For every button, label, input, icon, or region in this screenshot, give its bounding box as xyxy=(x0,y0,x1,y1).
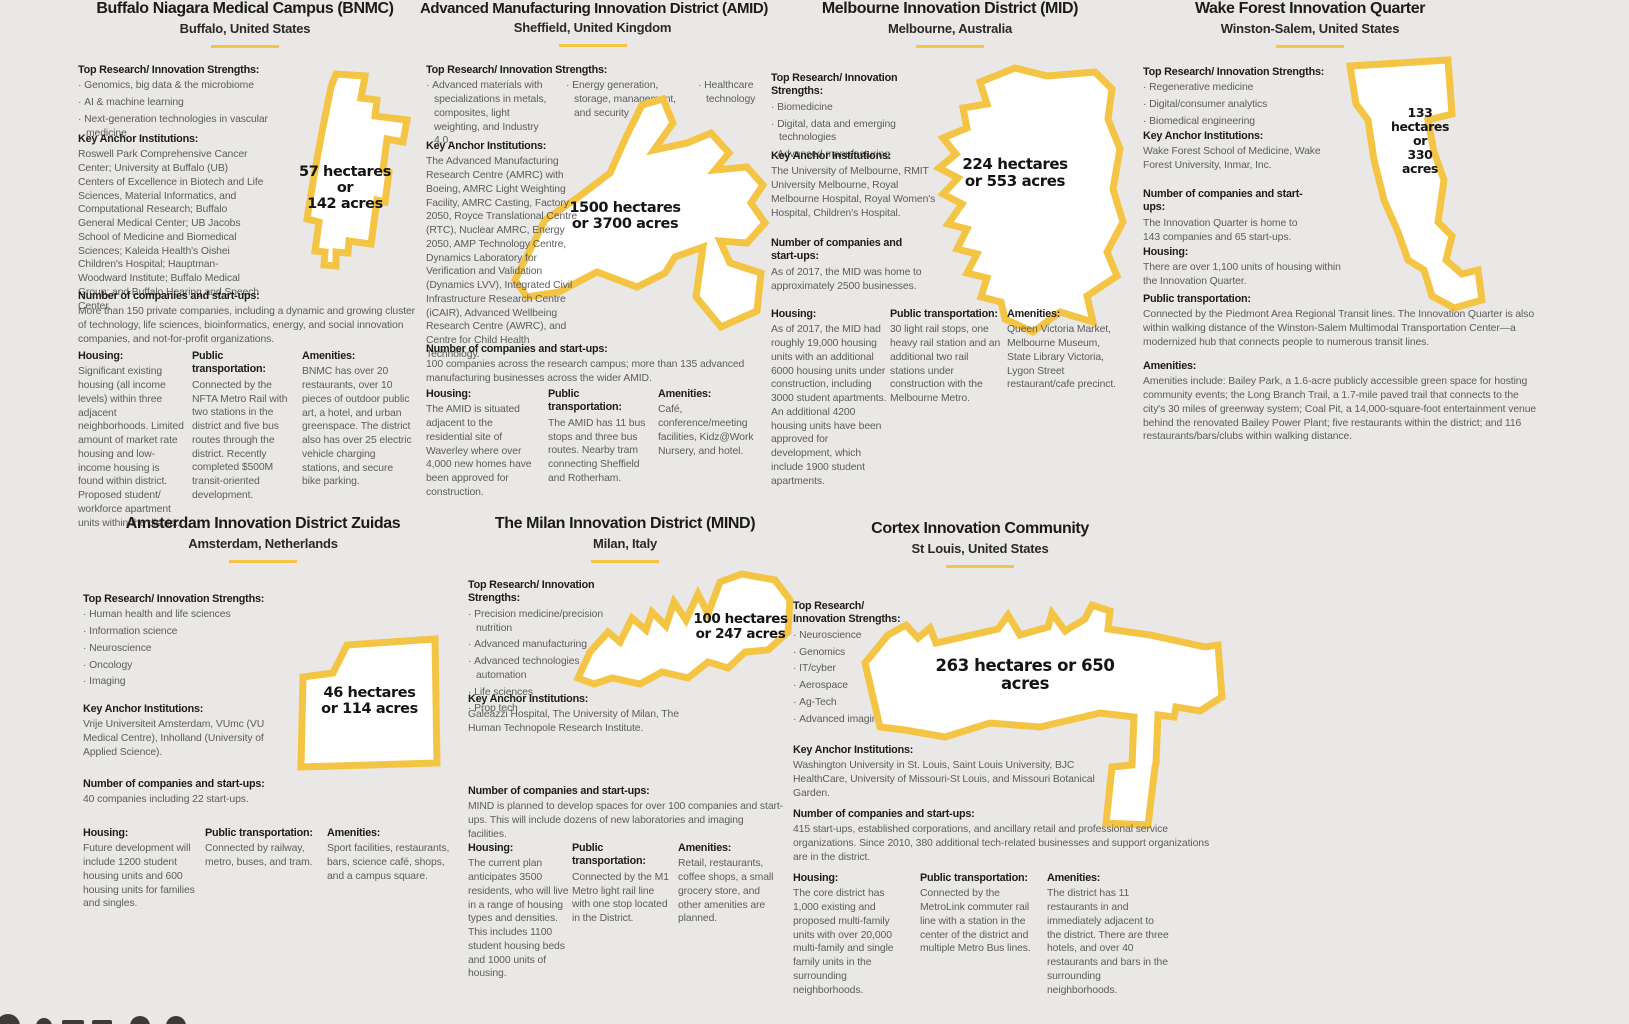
district-title: Wake Forest Innovation Quarter xyxy=(1135,0,1485,18)
transport-text: Connected by the M1 Metro light rail lin… xyxy=(572,871,674,926)
district-header: Buffalo Niagara Medical Campus (BNMC) Bu… xyxy=(70,0,420,48)
transport-text: Connected by the Piedmont Area Regional … xyxy=(1143,308,1543,349)
title-underline xyxy=(211,45,279,48)
district-title: Melbourne Innovation District (MID) xyxy=(765,0,1135,18)
amenities-text: Retail, restaurants, coffee shops, a sma… xyxy=(678,857,783,926)
area-label: 133 hectares or 330 acres xyxy=(1375,106,1465,176)
section-heading: Amenities: xyxy=(1047,872,1169,885)
section-anchors: Key Anchor Institutions: Vrije Universit… xyxy=(83,703,283,760)
section-housing: Housing: Significant existing housing (a… xyxy=(78,350,186,530)
area-label: 57 hectares or 142 acres xyxy=(280,164,410,213)
infographic-canvas: Buffalo Niagara Medical Campus (BNMC) Bu… xyxy=(0,0,1629,1024)
section-transport: Public transportation: Connected by the … xyxy=(920,872,1046,956)
companies-text: 100 companies across the research campus… xyxy=(426,358,756,385)
section-anchors: Key Anchor Institutions: Washington Univ… xyxy=(793,744,1103,801)
transport-text: Connected by railway, metro, buses, and … xyxy=(205,842,320,869)
strength-item: Neuroscience xyxy=(83,642,283,656)
anchors-text: Wake Forest School of Medicine, Wake For… xyxy=(1143,145,1333,172)
district-card-bnmc: Buffalo Niagara Medical Campus (BNMC) Bu… xyxy=(70,0,420,505)
footer-icons-partial xyxy=(0,1008,220,1024)
transport-text: 30 light rail stops, one heavy rail stat… xyxy=(890,323,1002,405)
section-heading: Key Anchor Institutions: xyxy=(426,140,578,153)
partial-icon xyxy=(0,1014,20,1024)
section-housing: Housing: Future development will include… xyxy=(83,827,203,911)
section-housing: Housing: The core district has 1,000 exi… xyxy=(793,872,911,997)
partial-icon xyxy=(130,1016,150,1024)
district-card-mind: The Milan Innovation District (MIND) Mil… xyxy=(460,515,790,1020)
district-location: St Louis, United States xyxy=(805,541,1155,556)
section-heading: Key Anchor Institutions: xyxy=(793,744,1103,757)
mind-map-shape: 100 hectares or 247 acres xyxy=(570,570,795,710)
district-location: Milan, Italy xyxy=(460,536,790,551)
housing-text: As of 2017, the MID had roughly 19,000 h… xyxy=(771,323,889,488)
companies-text: The Innovation Quarter is home to 143 co… xyxy=(1143,217,1313,244)
wfiq-map-shape: 133 hectares or 330 acres xyxy=(1330,58,1490,313)
section-heading: Public transportation: xyxy=(1143,293,1543,306)
district-location: Sheffield, United Kingdom xyxy=(420,20,765,35)
companies-text: MIND is planned to develop spaces for ov… xyxy=(468,800,783,841)
section-heading: Public transportation: xyxy=(572,842,674,869)
section-amenities: Amenities: Retail, restaurants, coffee s… xyxy=(678,842,783,926)
district-card-mid: Melbourne Innovation District (MID) Melb… xyxy=(765,0,1135,505)
companies-text: 40 companies including 22 start-ups. xyxy=(83,793,383,807)
section-amenities: Amenities: Sport facilities, restaurants… xyxy=(327,827,455,884)
anchors-text: The Advanced Manufacturing Research Cent… xyxy=(426,155,578,361)
section-heading: Amenities: xyxy=(1007,308,1117,321)
district-header: Cortex Innovation Community St Louis, Un… xyxy=(805,520,1155,568)
section-heading: Top Research/ Innovation Strengths: xyxy=(83,593,283,606)
title-underline xyxy=(916,45,984,48)
section-anchors: Key Anchor Institutions: The Advanced Ma… xyxy=(426,140,578,362)
strength-item: Biomedical engineering xyxy=(1143,115,1333,129)
anchors-text: Roswell Park Comprehensive Cancer Center… xyxy=(78,148,266,313)
section-heading: Housing: xyxy=(426,388,534,401)
area-label: 263 hectares or 650 acres xyxy=(910,657,1140,694)
transport-text: Connected by the MetroLink commuter rail… xyxy=(920,887,1046,956)
section-heading: Public transportation: xyxy=(205,827,320,840)
district-location: Amsterdam, Netherlands xyxy=(88,536,438,551)
strength-item: Digital/consumer analytics xyxy=(1143,98,1333,112)
amenities-text: BNMC has over 20 restaurants, over 10 pi… xyxy=(302,365,414,489)
anchors-text: Vrije Universiteit Amsterdam, VUmc (VU M… xyxy=(83,718,283,759)
section-companies: Number of companies and start-ups: More … xyxy=(78,290,420,347)
title-underline xyxy=(1276,45,1344,48)
section-heading: Top Research/ Innovation Strengths: xyxy=(1143,66,1333,79)
transport-text: The AMID has 11 bus stops and three bus … xyxy=(548,417,650,486)
companies-text: As of 2017, the MID was home to approxim… xyxy=(771,266,926,293)
partial-icon xyxy=(166,1016,186,1024)
anchors-text: The University of Melbourne, RMIT Univer… xyxy=(771,165,943,220)
section-anchors: Key Anchor Institutions: Galeazzi Hospit… xyxy=(468,693,698,736)
companies-text: More than 150 private companies, includi… xyxy=(78,305,420,346)
title-underline xyxy=(229,560,297,563)
district-title: Amsterdam Innovation District Zuidas xyxy=(88,515,438,533)
section-heading: Public transportation: xyxy=(920,872,1046,885)
section-heading: Housing: xyxy=(1143,246,1343,259)
amenities-text: Sport facilities, restaurants, bars, sci… xyxy=(327,842,455,883)
section-heading: Public transportation: xyxy=(890,308,1002,321)
district-header: Advanced Manufacturing Innovation Distri… xyxy=(420,0,765,47)
section-heading: Amenities: xyxy=(658,388,762,401)
section-amenities: Amenities: Amenities include: Bailey Par… xyxy=(1143,360,1541,444)
district-title: Advanced Manufacturing Innovation Distri… xyxy=(420,0,765,17)
district-card-cortex: Cortex Innovation Community St Louis, Un… xyxy=(785,520,1229,1024)
strength-item: Human health and life sciences xyxy=(83,608,283,622)
title-underline xyxy=(946,565,1014,568)
section-heading: Key Anchor Institutions: xyxy=(1143,130,1333,143)
amenities-text: The district has 11 restaurants in and i… xyxy=(1047,887,1169,997)
district-header: The Milan Innovation District (MIND) Mil… xyxy=(460,515,790,563)
strength-item: Imaging xyxy=(83,675,283,689)
housing-text: Significant existing housing (all income… xyxy=(78,365,186,530)
anchors-text: Galeazzi Hospital, The University of Mil… xyxy=(468,708,698,735)
section-anchors: Key Anchor Institutions: Roswell Park Co… xyxy=(78,133,266,313)
section-strengths: Top Research/ Innovation Strengths: Rege… xyxy=(1143,66,1333,132)
district-title: The Milan Innovation District (MIND) xyxy=(460,515,790,533)
section-amenities: Amenities: Café, conference/meeting faci… xyxy=(658,388,762,458)
section-heading: Housing: xyxy=(468,842,573,855)
section-heading: Number of companies and start-ups: xyxy=(83,778,383,791)
housing-text: The AMID is situated adjacent to the res… xyxy=(426,403,534,499)
section-heading: Key Anchor Institutions: xyxy=(468,693,698,706)
section-heading: Public transportation: xyxy=(548,388,650,415)
section-heading: Number of companies and start-ups: xyxy=(1143,188,1313,215)
transport-text: Connected by the NFTA Metro Rail with tw… xyxy=(192,379,298,503)
district-boundary-icon xyxy=(1330,58,1490,313)
section-housing: Housing: As of 2017, the MID had roughly… xyxy=(771,308,889,488)
district-location: Winston-Salem, United States xyxy=(1135,21,1485,36)
section-heading: Top Research/ Innovation Strengths: xyxy=(78,64,268,77)
section-heading: Number of companies and start-ups: xyxy=(426,343,756,356)
section-transport: Public transportation: Connected by rail… xyxy=(205,827,320,870)
district-location: Buffalo, United States xyxy=(70,21,420,36)
section-companies: Number of companies and start-ups: 100 c… xyxy=(426,343,756,386)
section-strengths: Top Research/ Innovation Strengths: Huma… xyxy=(83,593,283,692)
housing-text: The core district has 1,000 existing and… xyxy=(793,887,911,997)
district-card-wfiq: Wake Forest Innovation Quarter Winston-S… xyxy=(1135,0,1629,505)
section-companies: Number of companies and start-ups: 40 co… xyxy=(83,778,383,807)
section-strengths: Top Research/ Innovation Strengths: Geno… xyxy=(78,64,268,143)
strength-item: Oncology xyxy=(83,659,283,673)
section-companies: Number of companies and start-ups: As of… xyxy=(771,237,926,293)
anchors-text: Washington University in St. Louis, Sain… xyxy=(793,759,1103,800)
section-heading: Housing: xyxy=(83,827,203,840)
area-label: 46 hectares or 114 acres xyxy=(297,685,442,717)
strength-item: Genomics, big data & the microbiome xyxy=(78,79,268,93)
housing-text: There are over 1,100 units of housing wi… xyxy=(1143,261,1343,288)
title-underline xyxy=(591,560,659,563)
section-heading: Housing: xyxy=(793,872,911,885)
district-header: Amsterdam Innovation District Zuidas Ams… xyxy=(88,515,438,563)
section-heading: Number of companies and start-ups: xyxy=(468,785,783,798)
section-heading: Housing: xyxy=(78,350,186,363)
section-transport: Public transportation: Connected by the … xyxy=(192,350,298,503)
section-companies: Number of companies and start-ups: The I… xyxy=(1143,188,1313,244)
section-heading: Amenities: xyxy=(1143,360,1541,373)
companies-text: 415 start-ups, established corporations,… xyxy=(793,823,1213,864)
housing-text: Future development will include 1200 stu… xyxy=(83,842,203,911)
partial-icon xyxy=(62,1020,84,1024)
section-heading: Public transportation: xyxy=(192,350,298,377)
section-transport: Public transportation: Connected by the … xyxy=(1143,293,1543,350)
section-heading: Number of companies and start-ups: xyxy=(793,808,1213,821)
amenities-text: Café, conference/meeting facilities, Kid… xyxy=(658,403,762,458)
district-title: Buffalo Niagara Medical Campus (BNMC) xyxy=(70,0,420,18)
section-housing: Housing: There are over 1,100 units of h… xyxy=(1143,246,1343,289)
strength-item: Regenerative medicine xyxy=(1143,81,1333,95)
title-underline xyxy=(559,44,627,47)
section-transport: Public transportation: Connected by the … xyxy=(572,842,674,926)
district-card-amid: Advanced Manufacturing Innovation Distri… xyxy=(420,0,765,505)
strength-item: Information science xyxy=(83,625,283,639)
partial-icon xyxy=(36,1018,52,1024)
section-heading: Housing: xyxy=(771,308,889,321)
bnmc-map-shape: 57 hectares or 142 acres xyxy=(280,70,410,288)
section-housing: Housing: The AMID is situated adjacent t… xyxy=(426,388,534,500)
strength-item: AI & machine learning xyxy=(78,96,268,110)
district-header: Wake Forest Innovation Quarter Winston-S… xyxy=(1135,0,1485,48)
section-heading: Number of companies and start-ups: xyxy=(771,237,926,264)
section-transport: Public transportation: The AMID has 11 b… xyxy=(548,388,650,486)
section-heading: Amenities: xyxy=(678,842,783,855)
section-heading: Key Anchor Institutions: xyxy=(78,133,266,146)
section-companies: Number of companies and start-ups: 415 s… xyxy=(793,808,1213,865)
housing-text: The current plan anticipates 3500 reside… xyxy=(468,857,573,981)
section-housing: Housing: The current plan anticipates 35… xyxy=(468,842,573,981)
area-label: 100 hectares or 247 acres xyxy=(688,612,793,642)
section-amenities: Amenities: Queen Victoria Market, Melbou… xyxy=(1007,308,1117,392)
zuidas-map-shape: 46 hectares or 114 acres xyxy=(287,627,447,777)
section-amenities: Amenities: BNMC has over 20 restaurants,… xyxy=(302,350,414,489)
section-anchors: Key Anchor Institutions: The University … xyxy=(771,150,943,220)
amenities-text: Queen Victoria Market, Melbourne Museum,… xyxy=(1007,323,1117,392)
district-title: Cortex Innovation Community xyxy=(805,520,1155,538)
district-header: Melbourne Innovation District (MID) Melb… xyxy=(765,0,1135,48)
section-heading: Top Research/ Innovation Strengths: xyxy=(426,64,765,77)
section-amenities: Amenities: The district has 11 restauran… xyxy=(1047,872,1169,997)
amenities-text: Amenities include: Bailey Park, a 1.6-ac… xyxy=(1143,375,1541,444)
section-heading: Key Anchor Institutions: xyxy=(83,703,283,716)
section-heading: Number of companies and start-ups: xyxy=(78,290,420,303)
section-heading: Amenities: xyxy=(302,350,414,363)
section-anchors: Key Anchor Institutions: Wake Forest Sch… xyxy=(1143,130,1333,173)
section-heading: Key Anchor Institutions: xyxy=(771,150,943,163)
section-companies: Number of companies and start-ups: MIND … xyxy=(468,785,783,842)
partial-icon xyxy=(92,1020,112,1024)
district-location: Melbourne, Australia xyxy=(765,21,1135,36)
section-transport: Public transportation: 30 light rail sto… xyxy=(890,308,1002,406)
section-heading: Amenities: xyxy=(327,827,455,840)
district-card-zuidas: Amsterdam Innovation District Zuidas Ams… xyxy=(75,515,465,1020)
area-label: 224 hectares or 553 acres xyxy=(925,156,1105,190)
